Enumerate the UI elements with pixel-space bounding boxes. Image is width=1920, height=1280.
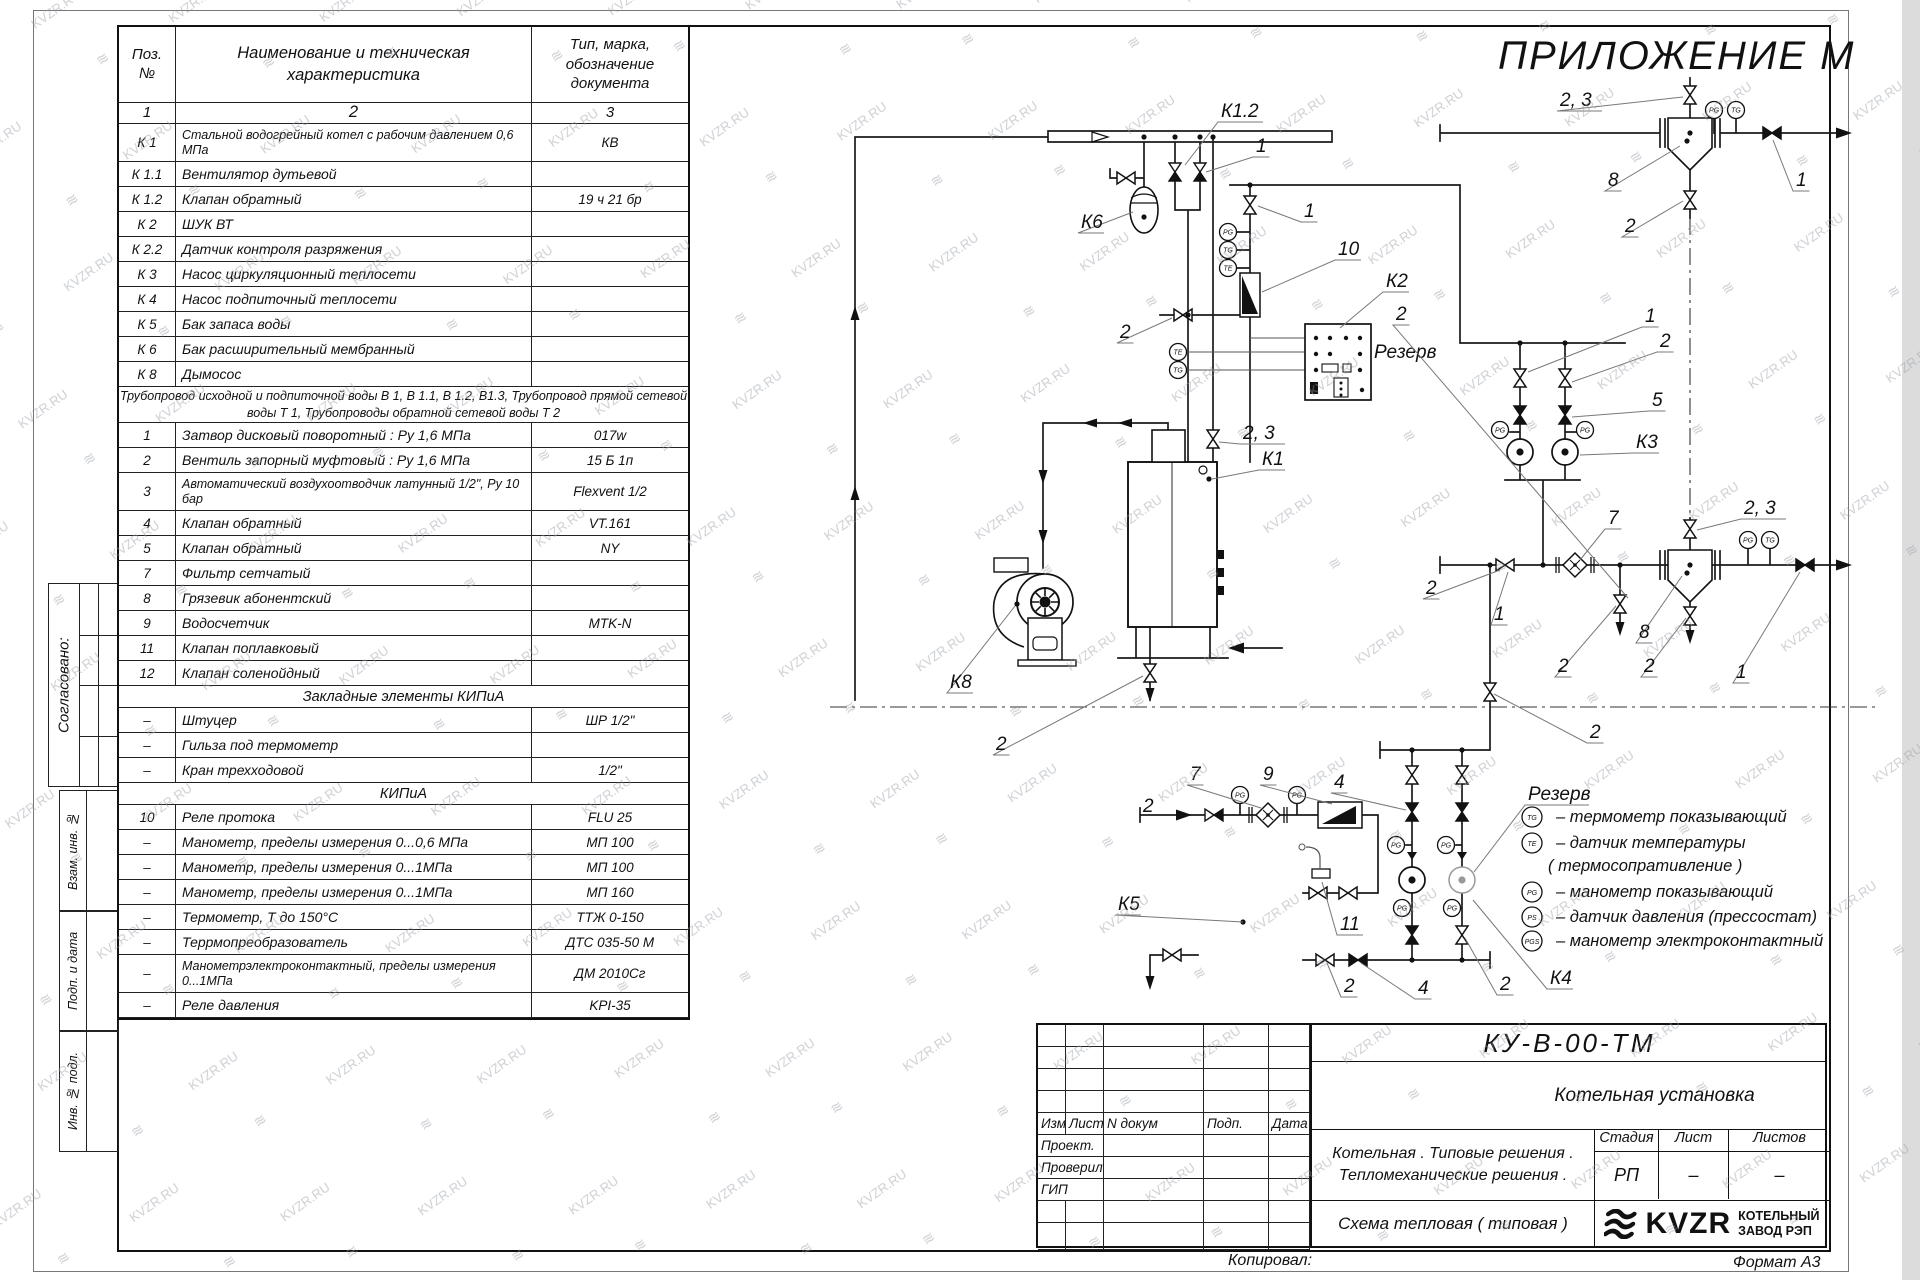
- rev-cell: [1104, 1157, 1204, 1178]
- rev-cell: [1104, 1223, 1204, 1249]
- rev-cell: [1269, 1223, 1310, 1249]
- spec-cell: Стальной водогрейный котел с рабочим дав…: [176, 124, 532, 161]
- valve-icon: [1456, 766, 1468, 784]
- logo-caption: КОТЕЛЬНЫЙ ЗАВОД РЭП: [1738, 1209, 1819, 1239]
- rev-cell: Проект.: [1038, 1135, 1104, 1156]
- rev-cell: [1066, 1047, 1104, 1068]
- valve-icon: [1316, 954, 1334, 966]
- spec-header-pos: Поз.№: [119, 27, 176, 102]
- rev-cell: Проверил: [1038, 1157, 1104, 1178]
- object-name: Котельная установка: [1312, 1062, 1827, 1130]
- legend-text: – датчик температуры: [1555, 834, 1746, 852]
- spec-cell: ШУК ВТ: [176, 212, 532, 236]
- spec-row: 2Вентиль запорный муфтовый : Ру 1,6 МПа1…: [119, 448, 688, 473]
- spec-cell: Террмопреобразователь: [176, 930, 532, 954]
- check-valve-icon: [1169, 163, 1181, 181]
- rev-cell: [1038, 1047, 1066, 1068]
- spec-cell: 11: [119, 636, 176, 660]
- spec-cell: FLU 25: [532, 805, 688, 829]
- diagram-callout: 2: [1557, 656, 1569, 677]
- rev-cell: [1269, 1201, 1310, 1222]
- svg-text:PG: PG: [1391, 843, 1402, 850]
- document-number: КУ-В-00-ТМ: [1312, 1025, 1827, 1062]
- spec-row: 8Грязевик абонентский: [119, 586, 688, 611]
- rev-cell: [1204, 1091, 1269, 1112]
- rev-cell: [1269, 1157, 1310, 1178]
- rev-row: ГИП: [1038, 1179, 1310, 1201]
- pump-icon: [1552, 439, 1578, 465]
- spec-cell: Клапан обратный: [176, 511, 532, 535]
- spec-cell: –: [119, 758, 176, 782]
- svg-text:PG: PG: [1709, 108, 1720, 115]
- legend-text: – манометр электроконтактный: [1555, 932, 1823, 950]
- spec-cell: 7: [119, 561, 176, 585]
- spec-cell: –: [119, 708, 176, 732]
- spec-cell: MTK-N: [532, 611, 688, 635]
- diagram-callout: 2: [1425, 578, 1437, 599]
- legend-item: ( термосопративление ): [1548, 857, 1742, 875]
- spec-cell: К 1: [119, 124, 176, 161]
- diagram-callout: 9: [1263, 764, 1274, 785]
- rev-cell: [1204, 1157, 1269, 1178]
- spec-row: 12Клапан соленойдный: [119, 661, 688, 686]
- svg-text:TG: TG: [1731, 108, 1741, 115]
- spec-row: 7Фильтр сетчатый: [119, 561, 688, 586]
- spec-row: 11Клапан поплавковый: [119, 636, 688, 661]
- dirt-trap-icon: [1668, 118, 1712, 170]
- diagram-callout: 10: [1338, 239, 1360, 260]
- spec-cell: [532, 561, 688, 585]
- engineering-drawing-sheet: { "sheet": { "appendix": "ПРИЛОЖЕНИЕ М",…: [0, 0, 1920, 1280]
- rev-cell: Лист: [1066, 1113, 1104, 1134]
- spec-cell: Вентиль запорный муфтовый : Ру 1,6 МПа: [176, 448, 532, 472]
- spec-cell: Бак расширительный мембранный: [176, 337, 532, 361]
- stamp-label: Подп. и дата: [60, 911, 86, 1031]
- gauge-icon-PG: PG: [1438, 837, 1455, 854]
- spec-cell: МП 100: [532, 855, 688, 879]
- spec-cell: Фильтр сетчатый: [176, 561, 532, 585]
- spec-row: –Термометр, Т до 150°СТТЖ 0-150: [119, 905, 688, 930]
- spec-cell: Клапан обратный: [176, 187, 532, 211]
- rev-cell: [1269, 1135, 1310, 1156]
- spec-row: 9ВодосчетчикMTK-N: [119, 611, 688, 636]
- spec-cell: [532, 661, 688, 685]
- spec-cell: МП 100: [532, 830, 688, 854]
- company-logo: KVZR КОТЕЛЬНЫЙ ЗАВОД РЭП: [1594, 1201, 1829, 1246]
- valve-icon: [1684, 607, 1696, 625]
- rev-cell: [1038, 1069, 1066, 1090]
- spec-cell: –: [119, 905, 176, 929]
- diagram-callout: К1.2: [1221, 101, 1259, 122]
- centerline: [830, 218, 1880, 707]
- spec-cell: ТТЖ 0-150: [532, 905, 688, 929]
- sheet-value: –: [1659, 1152, 1729, 1199]
- spec-cell: ШР 1/2": [532, 708, 688, 732]
- spec-cell: –: [119, 855, 176, 879]
- spec-cell: ДМ 2010Сг: [532, 955, 688, 992]
- legend-tag-icon: TE: [1528, 841, 1537, 848]
- diagram-callout: 7: [1190, 764, 1202, 785]
- rev-cell: [1204, 1135, 1269, 1156]
- gauge-icon-PG: PG: [1740, 532, 1757, 549]
- spec-row: –ШтуцерШР 1/2": [119, 708, 688, 733]
- spec-cell: [532, 312, 688, 336]
- rev-cell: [1066, 1223, 1104, 1249]
- rev-cell: [1269, 1091, 1310, 1112]
- piping-schematic: PGTGTETETGPGTGPGTGPGPGPGPGPGPGPGPG К1.21…: [690, 30, 1910, 1020]
- svg-text:TG: TG: [1765, 538, 1775, 545]
- diagram-callout: 2: [1499, 974, 1511, 995]
- diagram-callout: 2: [1659, 331, 1671, 352]
- spec-row: 10Реле протокаFLU 25: [119, 805, 688, 830]
- specification-table: Поз.№ Наименование и техническая характе…: [117, 25, 690, 1020]
- spec-cell: 12: [119, 661, 176, 685]
- valve-icon: [1406, 766, 1418, 784]
- valve-icon: [1484, 683, 1496, 701]
- rev-cell: [1269, 1025, 1310, 1046]
- rev-row: [1038, 1223, 1310, 1250]
- diagram-callout: 5: [1652, 390, 1663, 411]
- spec-cell: 1/2": [532, 758, 688, 782]
- spec-cell: NY: [532, 536, 688, 560]
- valve-icon: [1684, 191, 1696, 209]
- rev-cell: [1204, 1069, 1269, 1090]
- svg-text:TG: TG: [1173, 368, 1183, 375]
- logo-brand: KVZR: [1645, 1207, 1731, 1241]
- spec-header-type: Тип, марка,обозначениедокумента: [532, 27, 688, 102]
- diagram-callout: 1: [1494, 604, 1505, 625]
- spec-cell: 5: [119, 536, 176, 560]
- spec-cell: К 1.2: [119, 187, 176, 211]
- diagram-callout: 1: [1736, 662, 1747, 683]
- diagram-callout: 1: [1796, 170, 1807, 191]
- legend-item: TE– датчик температуры: [1522, 833, 1746, 853]
- stage-grid: Стадия Лист Листов РП – –: [1594, 1130, 1829, 1201]
- rev-row: [1038, 1201, 1310, 1223]
- spec-cell: К 2.2: [119, 237, 176, 261]
- valve-icon: [1117, 172, 1135, 184]
- stamp-label: Взам. инв. №: [60, 791, 86, 911]
- rev-cell: [1104, 1201, 1204, 1222]
- stamp-label: Инв. № подл.: [60, 1031, 86, 1151]
- valve-icon: [1559, 406, 1571, 424]
- rev-cell: [1204, 1201, 1269, 1222]
- approval-stamp: Согласовано:: [48, 583, 119, 787]
- spec-cell: 017w: [532, 423, 688, 447]
- spec-row: К 1.2Клапан обратный19 ч 21 бр: [119, 187, 688, 212]
- spec-cell: Штуцер: [176, 708, 532, 732]
- rev-cell: [1269, 1069, 1310, 1090]
- signal-lines: [1187, 338, 1305, 370]
- diagram-callout: 2: [1395, 304, 1407, 325]
- gauge-icon-PG: PG: [1220, 224, 1237, 241]
- svg-text:PG: PG: [1235, 793, 1246, 800]
- spec-cell: МП 160: [532, 880, 688, 904]
- rev-cell: Подп.: [1204, 1113, 1269, 1134]
- spec-row: –ТеррмопреобразовательДТС 035-50 М: [119, 930, 688, 955]
- diagram-callout: 2, 3: [1559, 90, 1592, 111]
- valve-icon: [1614, 595, 1626, 613]
- spec-cell: [532, 362, 688, 386]
- control-panel-icon: [1305, 324, 1371, 400]
- diagram-callout: 4: [1418, 978, 1429, 999]
- valve-icon: [1349, 954, 1367, 966]
- spec-cell: 4: [119, 511, 176, 535]
- rev-cell: [1104, 1135, 1204, 1156]
- diagram-callout: 8: [1608, 170, 1619, 191]
- pump-icon: [1507, 439, 1533, 465]
- valve-icon: [1514, 369, 1526, 387]
- spec-cell: Кран трехходовой: [176, 758, 532, 782]
- legend-item: PGS– манометр электроконтактный: [1522, 931, 1823, 951]
- rev-row: ИзмЛистN докумПодп.Дата: [1038, 1113, 1310, 1135]
- spec-header: Поз.№ Наименование и техническая характе…: [119, 27, 688, 103]
- spec-cell: К 5: [119, 312, 176, 336]
- legend-text: – манометр показывающий: [1555, 883, 1773, 901]
- doc-description: Котельная . Типовые решения . Тепломехан…: [1312, 1130, 1594, 1201]
- svg-text:PG: PG: [1397, 906, 1408, 913]
- gauge-icon-PG: PG: [1577, 422, 1594, 439]
- spec-cell: Термометр, Т до 150°С: [176, 905, 532, 929]
- rev-cell: [1066, 1025, 1104, 1046]
- spec-cell: Клапан соленойдный: [176, 661, 532, 685]
- diagram-callout: Резерв: [1374, 342, 1437, 363]
- spec-cell: 19 ч 21 бр: [532, 187, 688, 211]
- float-valve-icon: [1299, 844, 1330, 878]
- legend-text: – датчик давления (прессостат): [1555, 908, 1817, 926]
- stamp-box-inv: Инв. № подл.: [59, 1030, 119, 1152]
- diagram-callout: 8: [1639, 622, 1650, 643]
- rev-cell: [1038, 1025, 1066, 1046]
- rev-cell: Дата: [1269, 1113, 1310, 1134]
- spec-cell: Дымосос: [176, 362, 532, 386]
- gauge-icon-PG: PG: [1706, 102, 1723, 119]
- sheet-title: Схема тепловая ( типовая ): [1312, 1201, 1594, 1246]
- fan-icon: [994, 558, 1076, 666]
- spec-cell: Клапан поплавковый: [176, 636, 532, 660]
- spec-section: КИПиА: [119, 783, 688, 804]
- diagram-callout: К5: [1118, 894, 1140, 915]
- check-valve-icon: [1194, 163, 1206, 181]
- spec-row: –Манометрэлектроконтактный, пределы изме…: [119, 955, 688, 993]
- rev-cell: [1204, 1179, 1269, 1200]
- spec-section: Закладные элементы КИПиА: [119, 686, 688, 707]
- gauge-icon-PG: PG: [1394, 900, 1411, 917]
- diagram-callout: К6: [1081, 212, 1103, 233]
- valve-icon: [1339, 887, 1357, 899]
- spec-cell: К 3: [119, 262, 176, 286]
- spec-cell: К 4: [119, 287, 176, 311]
- svg-text:PG: PG: [1447, 906, 1458, 913]
- spec-cell: [532, 287, 688, 311]
- rev-row: [1038, 1069, 1310, 1091]
- diagram-callout: Резерв: [1528, 784, 1591, 805]
- rev-cell: [1204, 1223, 1269, 1249]
- spec-cell: Реле протока: [176, 805, 532, 829]
- rev-row: Проект.: [1038, 1135, 1310, 1157]
- valve-icon: [1559, 369, 1571, 387]
- rev-cell: [1038, 1201, 1066, 1222]
- flow-relay-icon: [1240, 273, 1260, 317]
- spec-cell: Грязевик абонентский: [176, 586, 532, 610]
- expansion-tank-icon: [1130, 187, 1158, 233]
- spec-cell: [532, 262, 688, 286]
- rev-cell: [1038, 1223, 1066, 1249]
- spec-cell: К 6: [119, 337, 176, 361]
- gauge-icon-PG: PG: [1388, 837, 1405, 854]
- rev-cell: [1104, 1025, 1204, 1046]
- spec-row: К 2ШУК ВТ: [119, 212, 688, 237]
- diagram-callout: К4: [1550, 968, 1572, 989]
- spec-row: К 1Стальной водогрейный котел с рабочим …: [119, 124, 688, 162]
- diagram-callout: К2: [1386, 271, 1408, 292]
- spec-cell: 9: [119, 611, 176, 635]
- diagram-callout: 1: [1256, 136, 1267, 157]
- check-valve-icon: [1205, 809, 1223, 821]
- svg-text:PG: PG: [1743, 538, 1754, 545]
- diagram-callout: К8: [950, 672, 972, 693]
- valve-icon: [1163, 949, 1181, 961]
- valve-icon: [1796, 559, 1814, 571]
- rev-cell: [1269, 1179, 1310, 1200]
- spec-row: 4Клапан обратныйVT.161: [119, 511, 688, 536]
- spec-cell: 8: [119, 586, 176, 610]
- rev-cell: [1066, 1069, 1104, 1090]
- rev-cell: [1269, 1047, 1310, 1068]
- rev-row: [1038, 1091, 1310, 1113]
- spec-cell: Водосчетчик: [176, 611, 532, 635]
- water-meter-icon: [1318, 802, 1362, 828]
- svg-text:PG: PG: [1495, 428, 1506, 435]
- valve-icon: [1763, 127, 1781, 139]
- rev-cell: [1104, 1069, 1204, 1090]
- copied-label: Копировал:: [1228, 1252, 1312, 1270]
- rev-cell: [1104, 1091, 1204, 1112]
- stage-label: Стадия: [1595, 1130, 1659, 1152]
- rev-row: [1038, 1047, 1310, 1069]
- diagram-callout: 7: [1608, 508, 1620, 529]
- spec-cell: Манометр, пределы измерения 0...1МПа: [176, 855, 532, 879]
- spec-cell: [532, 636, 688, 660]
- legend-tag-icon: PS: [1527, 915, 1537, 922]
- rev-cell: [1204, 1025, 1269, 1046]
- spec-cell: 1: [119, 423, 176, 447]
- legend: TG– термометр показывающийTE– датчик тем…: [1522, 807, 1823, 951]
- legend-tag-icon: PGS: [1525, 939, 1540, 946]
- sheets-value: –: [1729, 1152, 1830, 1199]
- diagram-callout: 4: [1334, 772, 1345, 793]
- svg-text:TG: TG: [1223, 248, 1233, 255]
- rev-cell: ГИП: [1038, 1179, 1104, 1200]
- diagram-callout: 2: [1589, 722, 1601, 743]
- spec-cell: 3: [119, 473, 176, 510]
- spec-rows: К 1Стальной водогрейный котел с рабочим …: [119, 124, 688, 1018]
- diagram-callout: К1: [1262, 449, 1284, 470]
- svg-text:TE: TE: [1174, 350, 1183, 357]
- spec-cell: ДТС 035-50 М: [532, 930, 688, 954]
- spec-cell: Манометрэлектроконтактный, пределы измер…: [176, 955, 532, 992]
- spec-cell: Затвор дисковый поворотный : Ру 1,6 МПа: [176, 423, 532, 447]
- spec-row: К 2.2Датчик контроля разряжения: [119, 237, 688, 262]
- spec-cell: Flexvent 1/2: [532, 473, 688, 510]
- spec-cell: Манометр, пределы измерения 0...0,6 МПа: [176, 830, 532, 854]
- diagram-callout: 1: [1304, 201, 1315, 222]
- spec-header-name: Наименование и техническая характеристик…: [176, 27, 532, 102]
- spec-row: –Кран трехходовой1/2": [119, 758, 688, 783]
- rev-cell: [1104, 1179, 1204, 1200]
- spec-cell: KPI-35: [532, 993, 688, 1017]
- diagram-callout: 2: [1119, 322, 1131, 343]
- rev-row: Проверил: [1038, 1157, 1310, 1179]
- gauge-icon-TG: TG: [1220, 242, 1237, 259]
- reserve-pump-icon: [1449, 867, 1475, 893]
- sheets-label: Листов: [1729, 1130, 1830, 1152]
- spec-cell: VT.161: [532, 511, 688, 535]
- gauge-icon-TE: TE: [1220, 260, 1237, 277]
- valve-icon: [1684, 86, 1696, 104]
- boiler-icon: [1128, 430, 1224, 627]
- dirt-trap-icon: [1668, 550, 1712, 602]
- legend-item: PS– датчик давления (прессостат): [1522, 907, 1817, 927]
- valve-icon: [1244, 196, 1256, 214]
- logo-squiggle-icon: [1604, 1209, 1638, 1239]
- spec-cell: КВ: [532, 124, 688, 161]
- gauge-icon-TE: TE: [1170, 344, 1187, 361]
- valve-icon: [1496, 559, 1514, 571]
- legend-tag-icon: PG: [1527, 890, 1538, 897]
- spec-cell: Насос циркуляционный теплосети: [176, 262, 532, 286]
- revision-table: ИзмЛистN докумПодп.ДатаПроект.ПроверилГИ…: [1038, 1025, 1310, 1246]
- spec-row: К 5Бак запаса воды: [119, 312, 688, 337]
- legend-item: TG– термометр показывающий: [1522, 807, 1787, 827]
- spec-row: 5Клапан обратныйNY: [119, 536, 688, 561]
- spec-row: –Манометр, пределы измерения 0...1МПаМП …: [119, 880, 688, 905]
- spec-cell: [532, 237, 688, 261]
- spec-cell: Реле давления: [176, 993, 532, 1017]
- spec-cell: [532, 586, 688, 610]
- spec-row: –Гильза под термометр: [119, 733, 688, 758]
- spec-cell: –: [119, 880, 176, 904]
- spec-cell: Бак запаса воды: [176, 312, 532, 336]
- spec-row: 1Затвор дисковый поворотный : Ру 1,6 МПа…: [119, 423, 688, 448]
- spec-cell: 10: [119, 805, 176, 829]
- diagram-callout: 2: [1142, 796, 1154, 817]
- title-block: ИзмЛистN докумПодп.ДатаПроект.ПроверилГИ…: [1036, 1023, 1827, 1248]
- stamp-box-vzam: Взам. инв. №: [59, 790, 119, 912]
- spec-row: К 4Насос подпиточный теплосети: [119, 287, 688, 312]
- check-tick: [1092, 132, 1108, 142]
- spec-cell: Манометр, пределы измерения 0...1МПа: [176, 880, 532, 904]
- spec-row: –Манометр, пределы измерения 0...1МПаМП …: [119, 855, 688, 880]
- legend-tag-icon: TG: [1527, 815, 1537, 822]
- spec-index-row: 1 2 3: [119, 103, 688, 124]
- diagram-callout: К3: [1636, 432, 1658, 453]
- spec-cell: [532, 337, 688, 361]
- valve-icon: [1684, 520, 1696, 538]
- legend-text: ( термосопративление ): [1548, 857, 1742, 875]
- rev-row: [1038, 1025, 1310, 1047]
- valve-icon: [1514, 406, 1526, 424]
- rev-cell: N докум: [1104, 1113, 1204, 1134]
- rev-cell: [1038, 1091, 1066, 1112]
- spec-row: Закладные элементы КИПиА: [119, 686, 688, 708]
- legend-item: PG– манометр показывающий: [1522, 882, 1773, 902]
- spec-cell: [532, 162, 688, 186]
- spec-cell: Насос подпиточный теплосети: [176, 287, 532, 311]
- agreed-label: Согласовано:: [49, 584, 79, 786]
- spec-cell: –: [119, 830, 176, 854]
- approval-grid: [79, 584, 118, 786]
